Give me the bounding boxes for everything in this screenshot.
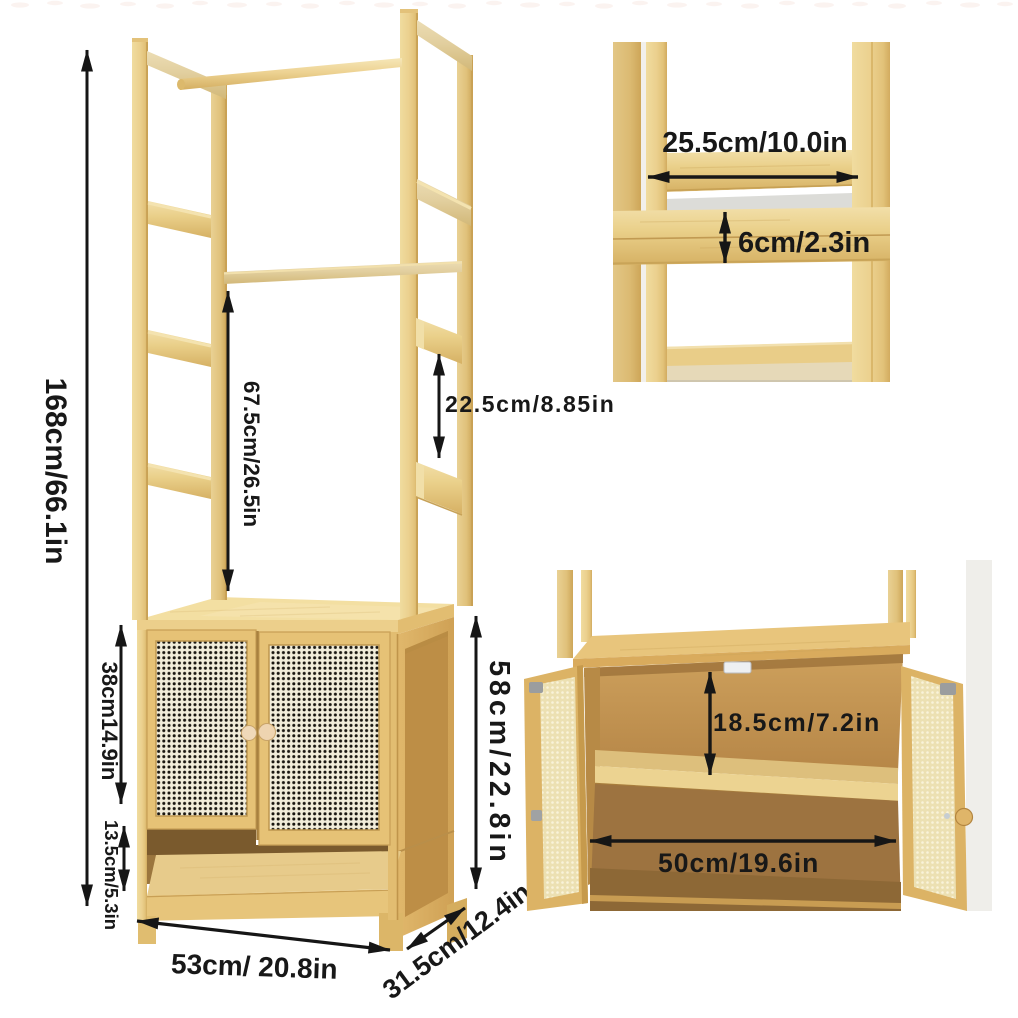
svg-text:58cm/22.8in: 58cm/22.8in [483,660,515,866]
svg-text:67.5cm/26.5in: 67.5cm/26.5in [239,381,264,527]
svg-text:22.5cm/8.85in: 22.5cm/8.85in [445,391,615,417]
svg-text:13.5cm/5.3in: 13.5cm/5.3in [101,820,122,930]
svg-text:50cm/19.6in: 50cm/19.6in [658,848,819,878]
svg-text:25.5cm/10.0in: 25.5cm/10.0in [662,127,847,159]
svg-text:18.5cm/7.2in: 18.5cm/7.2in [713,709,881,737]
svg-text:168cm/66.1in: 168cm/66.1in [39,378,72,565]
svg-text:6cm/2.3in: 6cm/2.3in [738,227,870,259]
svg-text:38cm14.9in: 38cm14.9in [97,662,122,781]
svg-text:53cm/ 20.8in: 53cm/ 20.8in [171,948,339,985]
